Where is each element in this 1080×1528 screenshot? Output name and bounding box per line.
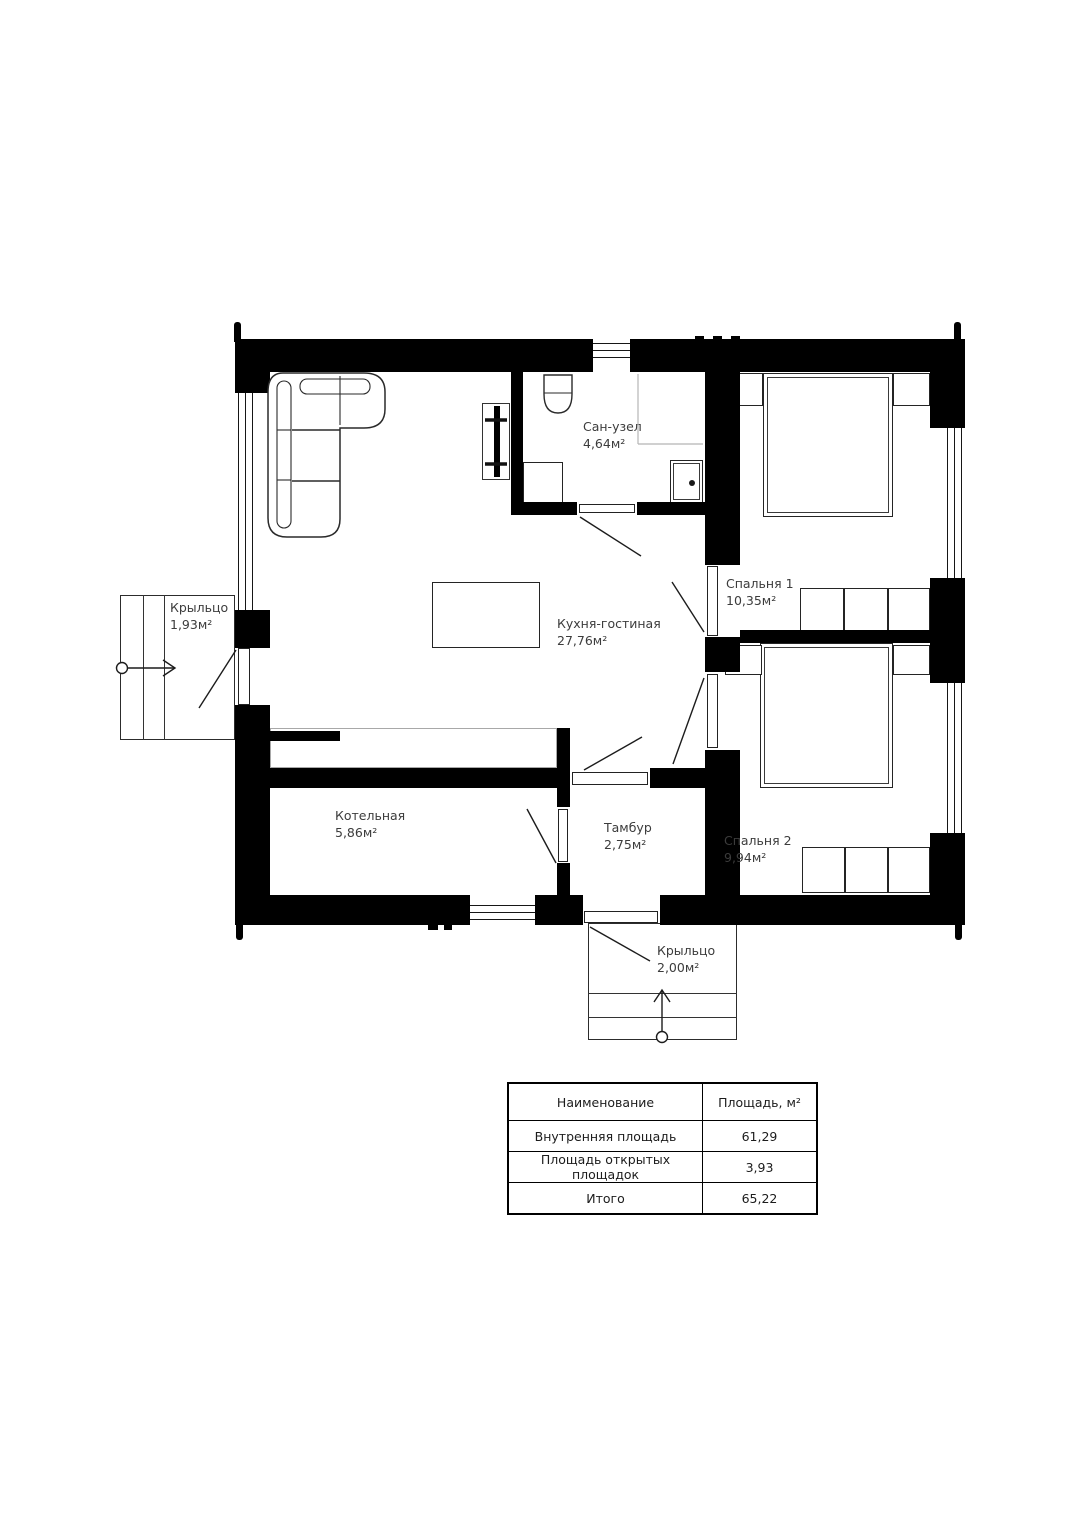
dining-table bbox=[432, 582, 540, 648]
corner-tick bbox=[954, 322, 961, 342]
roof-mark bbox=[695, 336, 704, 344]
bedroom-1-door-leaf bbox=[707, 566, 718, 636]
porch-bottom-step-line bbox=[588, 993, 737, 994]
row-name: Площадь открытых площадок bbox=[508, 1152, 703, 1183]
right-wall bbox=[930, 833, 965, 925]
bed-1-blanket bbox=[767, 377, 889, 513]
table-row: Площадь открытых площадок 3,93 bbox=[508, 1152, 817, 1183]
room-area: 10,35м² bbox=[726, 592, 794, 609]
row-name: Итого bbox=[508, 1183, 703, 1215]
washing-machine-door bbox=[673, 463, 700, 500]
bedroom-2-window bbox=[930, 683, 965, 833]
shower-outline bbox=[638, 374, 703, 444]
corner-tick bbox=[236, 923, 243, 940]
bed-1 bbox=[763, 373, 893, 517]
corner-tick bbox=[234, 322, 241, 342]
nightstand bbox=[893, 373, 930, 406]
roof-mark bbox=[731, 336, 740, 344]
wardrobe-2 bbox=[802, 847, 930, 893]
bed-2 bbox=[760, 643, 893, 788]
room-name: Спальня 2 bbox=[724, 832, 792, 849]
bottom-wall bbox=[660, 895, 965, 925]
row-value: 61,29 bbox=[703, 1121, 818, 1152]
bedroom-divider-wall bbox=[740, 630, 930, 643]
bathroom-door-swing bbox=[580, 517, 641, 556]
washing-machine-knob bbox=[689, 480, 695, 486]
room-name: Крыльцо bbox=[170, 599, 228, 616]
room-label-bedroom-2: Спальня 2 9,94м² bbox=[724, 832, 792, 867]
bedroom-1-door-swing bbox=[672, 582, 704, 632]
boiler-room-window bbox=[470, 895, 535, 925]
header-name: Наименование bbox=[508, 1083, 703, 1121]
room-label-porch-left: Крыльцо 1,93м² bbox=[170, 599, 228, 634]
sofa bbox=[268, 373, 385, 537]
area-summary-table: Наименование Площадь, м² Внутренняя площ… bbox=[507, 1082, 818, 1215]
wardrobe-divider bbox=[887, 847, 889, 893]
room-area: 27,76м² bbox=[557, 632, 661, 649]
room-label-boiler-room: Котельная 5,86м² bbox=[335, 807, 405, 842]
left-wall bbox=[235, 610, 270, 648]
entry-door-bottom-leaf bbox=[584, 911, 658, 923]
room-label-porch-bottom: Крыльцо 2,00м² bbox=[657, 942, 715, 977]
floor-plan-canvas: Сан-узел 4,64м² Спальня 1 10,35м² Кухня-… bbox=[0, 0, 1080, 1528]
room-name: Тамбур bbox=[604, 819, 652, 836]
header-area: Площадь, м² bbox=[703, 1083, 818, 1121]
bottom-wall bbox=[535, 895, 583, 925]
washing-machine bbox=[670, 460, 703, 503]
nightstand bbox=[893, 645, 930, 675]
room-name: Котельная bbox=[335, 807, 405, 824]
roof-mark bbox=[444, 921, 452, 930]
room-area: 1,93м² bbox=[170, 616, 228, 633]
porch-bottom bbox=[588, 923, 737, 1040]
boiler-room-door-leaf bbox=[558, 809, 568, 862]
boiler-room-door-swing bbox=[527, 809, 556, 863]
loft-ladder-rail bbox=[494, 406, 500, 477]
boiler-room-wall bbox=[270, 768, 557, 788]
right-wall bbox=[930, 578, 965, 683]
bedroom-2-door-leaf bbox=[707, 674, 718, 748]
bedroom-2-door-swing bbox=[673, 678, 704, 764]
porch-bottom-step-line bbox=[588, 1017, 737, 1018]
bathroom-wall bbox=[637, 502, 705, 515]
bathroom-wall bbox=[511, 502, 577, 515]
bathroom-window bbox=[593, 339, 630, 372]
room-area: 9,94м² bbox=[724, 849, 792, 866]
entry-door-left-leaf bbox=[238, 648, 250, 705]
wardrobe-1 bbox=[800, 588, 930, 631]
table-row: Итого 65,22 bbox=[508, 1183, 817, 1215]
row-name: Внутренняя площадь bbox=[508, 1121, 703, 1152]
bedroom-1-window bbox=[930, 428, 965, 578]
wardrobe-divider bbox=[887, 588, 889, 631]
center-wall bbox=[705, 750, 740, 895]
room-name: Крыльцо bbox=[657, 942, 715, 959]
table-row: Внутренняя площадь 61,29 bbox=[508, 1121, 817, 1152]
bathroom-door-leaf bbox=[579, 504, 635, 513]
center-wall bbox=[705, 372, 740, 565]
tambour-entry-door-swing bbox=[584, 737, 642, 770]
tambour-wall bbox=[557, 863, 570, 895]
top-wall bbox=[235, 339, 593, 372]
boiler-room-wall bbox=[650, 768, 705, 788]
porch-left-step-line bbox=[143, 595, 144, 740]
bathroom-wall bbox=[511, 372, 523, 513]
living-room-window bbox=[235, 393, 270, 610]
right-wall bbox=[930, 339, 965, 428]
room-name: Сан-узел bbox=[583, 418, 642, 435]
table-header-row: Наименование Площадь, м² bbox=[508, 1083, 817, 1121]
room-area: 5,86м² bbox=[335, 824, 405, 841]
wardrobe-divider bbox=[844, 847, 846, 893]
top-wall bbox=[630, 339, 965, 372]
room-name: Спальня 1 bbox=[726, 575, 794, 592]
tambour-wall bbox=[557, 728, 570, 807]
bathroom-fixture-square bbox=[523, 462, 563, 503]
corner-tick bbox=[955, 923, 962, 940]
row-value: 65,22 bbox=[703, 1183, 818, 1215]
room-label-kitchen-living: Кухня-гостиная 27,76м² bbox=[557, 615, 661, 650]
kitchen-block bbox=[262, 731, 340, 741]
porch-left-step-line bbox=[164, 595, 165, 740]
center-wall bbox=[705, 637, 740, 672]
wardrobe-divider bbox=[843, 588, 845, 631]
room-label-tambour: Тамбур 2,75м² bbox=[604, 819, 652, 854]
room-area: 2,75м² bbox=[604, 836, 652, 853]
tambour-entry-door-leaf bbox=[572, 772, 648, 785]
left-wall bbox=[235, 339, 270, 395]
roof-mark bbox=[713, 336, 722, 344]
roof-mark bbox=[428, 921, 438, 930]
floor-plan-page: Сан-узел 4,64м² Спальня 1 10,35м² Кухня-… bbox=[0, 0, 1080, 1528]
bed-2-blanket bbox=[764, 647, 889, 784]
room-area: 4,64м² bbox=[583, 435, 642, 452]
sink bbox=[544, 375, 572, 413]
room-label-bedroom-1: Спальня 1 10,35м² bbox=[726, 575, 794, 610]
room-label-bathroom: Сан-узел 4,64м² bbox=[583, 418, 642, 453]
room-area: 2,00м² bbox=[657, 959, 715, 976]
room-name: Кухня-гостиная bbox=[557, 615, 661, 632]
row-value: 3,93 bbox=[703, 1152, 818, 1183]
